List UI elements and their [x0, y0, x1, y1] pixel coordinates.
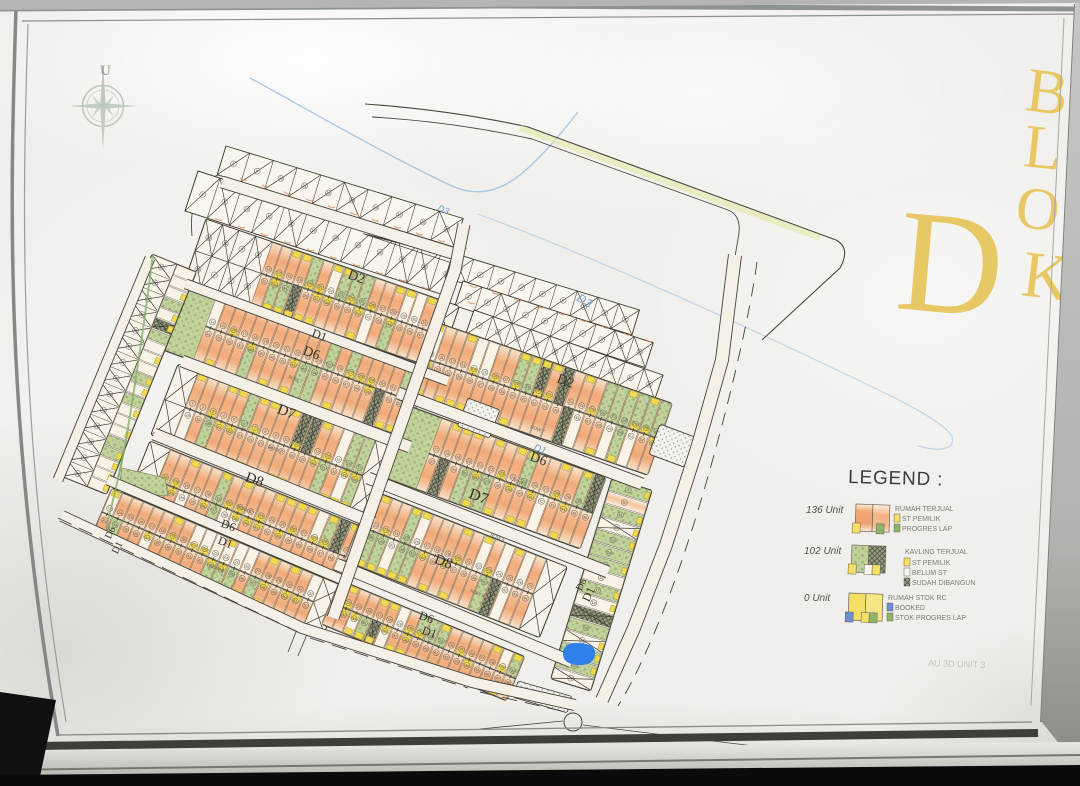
svg-text:0 Unit: 0 Unit [804, 593, 831, 604]
svg-text:RUMAH TERJUAL: RUMAH TERJUAL [895, 506, 954, 513]
svg-text:AU 3D UNIT 3: AU 3D UNIT 3 [928, 658, 986, 670]
svg-text:BELUM ST: BELUM ST [912, 570, 948, 577]
svg-text:136 Unit: 136 Unit [806, 505, 844, 516]
svg-text:102 Unit: 102 Unit [804, 546, 842, 557]
svg-text:KAVLING TERJUAL: KAVLING TERJUAL [905, 549, 968, 556]
svg-text:LEGEND :: LEGEND : [848, 467, 944, 490]
svg-text:U: U [100, 63, 111, 79]
svg-text:RUMAH STOK RC: RUMAH STOK RC [888, 595, 947, 602]
svg-text:ST PEMILIK: ST PEMILIK [902, 516, 941, 523]
svg-text:PROGRES LAP: PROGRES LAP [902, 526, 953, 533]
svg-text:STOK PROGRES LAP: STOK PROGRES LAP [895, 615, 966, 622]
svg-text:D: D [891, 178, 1010, 349]
svg-text:SUDAH DIBANGUN: SUDAH DIBANGUN [912, 580, 975, 587]
svg-text:BOOKED: BOOKED [895, 605, 925, 612]
svg-text:ST PEMILIK: ST PEMILIK [912, 560, 951, 567]
